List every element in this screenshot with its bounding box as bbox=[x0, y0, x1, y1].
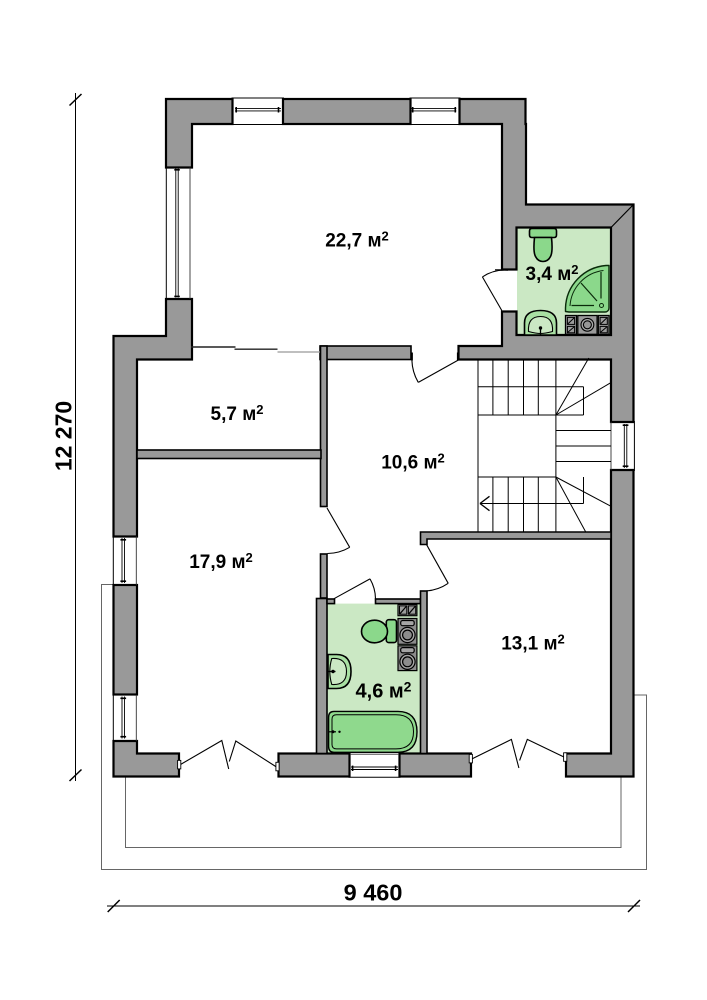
svg-text:12 270: 12 270 bbox=[51, 401, 77, 471]
svg-text:10,6 м2: 10,6 м2 bbox=[381, 451, 445, 474]
svg-text:22,7 м2: 22,7 м2 bbox=[325, 229, 389, 252]
svg-text:4,6 м2: 4,6 м2 bbox=[356, 679, 412, 703]
svg-text:5,7 м2: 5,7 м2 bbox=[211, 402, 264, 425]
svg-text:17,9 м2: 17,9 м2 bbox=[189, 550, 253, 573]
svg-text:3,4 м2: 3,4 м2 bbox=[526, 262, 579, 285]
svg-text:13,1 м2: 13,1 м2 bbox=[501, 632, 565, 655]
svg-text:9 460: 9 460 bbox=[344, 880, 403, 906]
